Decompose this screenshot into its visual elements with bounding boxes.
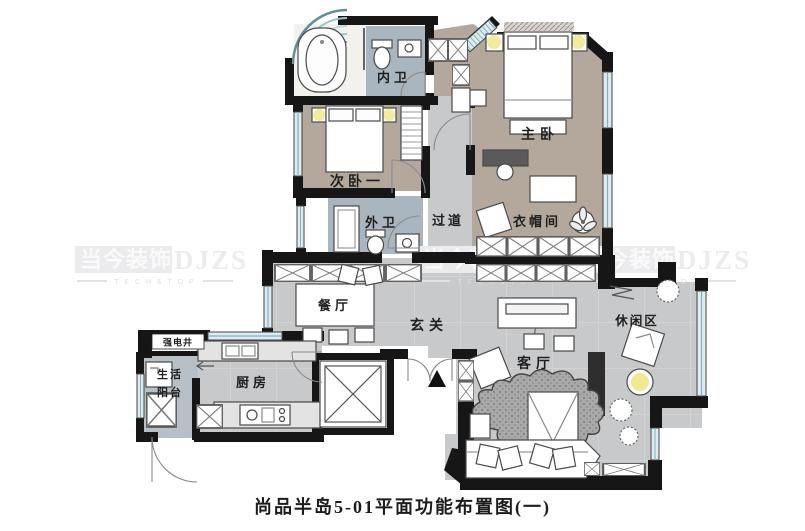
cloakroom-table [530, 176, 576, 202]
shower-stall [334, 206, 359, 252]
utility-shaft-tag: 强电井 [152, 334, 204, 349]
watermark-brand-en: DJZS [174, 245, 248, 275]
window-balcony [137, 374, 144, 418]
label-balcony-line1: 生活 [157, 367, 183, 381]
wardrobe-xbox [539, 237, 568, 256]
label-inner-bath: 内卫 [377, 70, 411, 85]
closet-xbox [449, 39, 468, 61]
plan-title: 尚品半岛5-01平面功能布置图(一) [0, 493, 805, 519]
coffee-table [528, 392, 578, 442]
label-balcony-line2: 阳台 [157, 385, 183, 399]
window-dining [264, 286, 272, 328]
round-table [627, 369, 653, 395]
bathtub [298, 28, 346, 92]
plant-icon [620, 427, 638, 445]
toilet-inner [372, 40, 392, 69]
sideboard-xbox [275, 265, 310, 282]
door-balcony [152, 437, 197, 482]
wardrobe-xbox [508, 237, 537, 256]
label-master-bedroom: 主卧 [521, 126, 559, 143]
floor-corridor [428, 96, 472, 264]
floorplan-page: 当今装饰 DJZS T E C H & T O P 当今装饰 DJZS T E … [0, 0, 805, 531]
master-cabinet [452, 88, 470, 112]
floorplan-drawing: 当今装饰 DJZS T E C H & T O P 当今装饰 DJZS T E … [0, 0, 805, 531]
bedroom2-shelf [401, 106, 422, 160]
watermark-left: 当今装饰 DJZS T E C H & T O P [75, 245, 248, 286]
sink-inner [398, 40, 421, 57]
watermark-tagline: T E C H & T O P [114, 279, 195, 286]
wardrobe-xbox [477, 237, 506, 256]
sink-outer [396, 234, 419, 252]
plant-icon [610, 399, 632, 421]
sideboard-xbox [507, 265, 535, 282]
label-living: 客厅 [516, 355, 555, 372]
watermark-brand-cn: 当今装饰 [80, 247, 172, 272]
window-outer-bath [297, 206, 304, 248]
kitchen-counter-bottom [214, 402, 322, 428]
window-bedroom2 [294, 112, 302, 176]
sill-xbox [584, 463, 599, 476]
closet-xbox [452, 65, 469, 85]
sideboard-xbox [567, 265, 595, 282]
window-leisure [697, 291, 706, 396]
kitchen-xbox [197, 405, 223, 428]
elevator-shaft [320, 361, 386, 427]
shoe-cabinet-xbox [458, 382, 473, 401]
label-corridor: 过道 [432, 213, 464, 228]
wardrobe-xbox [570, 237, 599, 256]
window-kitchen [208, 332, 282, 340]
label-cloakroom: 衣帽间 [513, 214, 561, 229]
sideboard-xbox [477, 265, 505, 282]
label-outer-bath: 外卫 [364, 215, 399, 230]
kitchen-counter-top [198, 341, 316, 361]
window-living-right [651, 428, 659, 460]
plant-icon [657, 280, 679, 302]
watermark-brand-en: DJZS [677, 245, 751, 275]
sill-xbox [603, 464, 645, 476]
closet-xbox [429, 39, 448, 61]
master-desk [470, 90, 486, 106]
side-table [470, 414, 490, 438]
toilet-outer [366, 230, 385, 254]
label-utility-shaft: 强电井 [163, 337, 193, 348]
label-second-bedroom: 次卧一 [330, 173, 384, 190]
label-dining: 餐厅 [317, 298, 352, 313]
shoe-cabinet-xbox [458, 361, 473, 380]
label-leisure: 休闲区 [614, 313, 659, 328]
sideboard-xbox [537, 265, 565, 282]
label-foyer: 玄关 [410, 317, 448, 334]
label-kitchen: 厨房 [236, 375, 270, 390]
sideboard-xbox [386, 265, 421, 282]
